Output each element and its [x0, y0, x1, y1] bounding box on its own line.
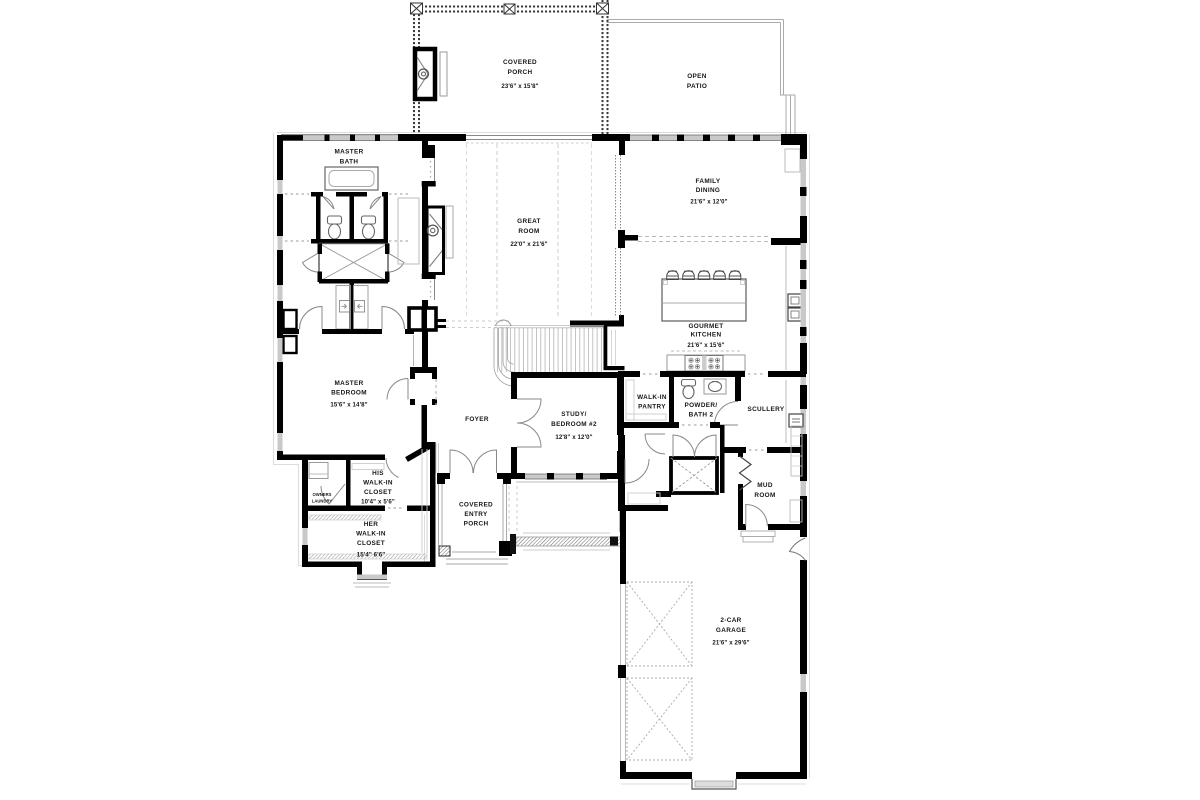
- svg-text:GARAGE: GARAGE: [716, 627, 747, 634]
- svg-text:MASTER: MASTER: [334, 380, 363, 387]
- svg-text:ROOM: ROOM: [518, 228, 539, 235]
- svg-text:10'4" x 5'6": 10'4" x 5'6": [361, 499, 395, 506]
- svg-text:BATH 2: BATH 2: [689, 412, 714, 419]
- svg-text:PANTRY: PANTRY: [638, 404, 666, 411]
- svg-text:MUD: MUD: [757, 482, 773, 489]
- svg-text:HIS: HIS: [372, 470, 384, 477]
- svg-text:CLOSET: CLOSET: [364, 489, 392, 496]
- svg-text:SCULLERY: SCULLERY: [747, 406, 784, 413]
- svg-text:POWDER/: POWDER/: [685, 402, 718, 409]
- svg-text:KITCHEN: KITCHEN: [691, 332, 722, 339]
- svg-text:21'6" x 15'6": 21'6" x 15'6": [687, 342, 724, 349]
- svg-text:21'6" x 29'6": 21'6" x 29'6": [712, 640, 749, 647]
- svg-text:COVERED: COVERED: [503, 59, 537, 66]
- svg-text:15'4" 6'6": 15'4" 6'6": [357, 552, 386, 559]
- svg-text:WALK-IN: WALK-IN: [363, 480, 393, 487]
- svg-text:GREAT: GREAT: [517, 218, 541, 225]
- svg-text:15'6" x 14'8": 15'6" x 14'8": [330, 402, 367, 409]
- svg-text:ROOM: ROOM: [754, 492, 775, 499]
- svg-text:FAMILY: FAMILY: [696, 178, 721, 185]
- svg-text:OPEN: OPEN: [687, 73, 707, 80]
- svg-text:BEDROOM: BEDROOM: [331, 390, 367, 397]
- svg-text:ENTRY: ENTRY: [464, 511, 488, 518]
- svg-text:21'6" x 12'0": 21'6" x 12'0": [690, 199, 727, 206]
- svg-text:PORCH: PORCH: [464, 521, 489, 528]
- svg-text:22'0" x 21'6": 22'0" x 21'6": [510, 241, 547, 248]
- svg-text:DINING: DINING: [696, 187, 720, 194]
- svg-text:2-CAR: 2-CAR: [720, 617, 741, 624]
- svg-text:MASTER: MASTER: [334, 149, 363, 156]
- svg-text:CLOSET: CLOSET: [357, 540, 385, 547]
- svg-text:BEDROOM #2: BEDROOM #2: [551, 421, 597, 428]
- svg-text:OWNERS: OWNERS: [313, 492, 332, 497]
- svg-text:COVERED: COVERED: [459, 502, 493, 509]
- svg-text:HER: HER: [364, 521, 379, 528]
- svg-text:FOYER: FOYER: [465, 416, 489, 423]
- svg-text:WALK-IN: WALK-IN: [637, 394, 667, 401]
- svg-text:PORCH: PORCH: [508, 69, 533, 76]
- svg-text:LAUNDRY: LAUNDRY: [312, 499, 333, 504]
- svg-text:GOURMET: GOURMET: [688, 323, 723, 330]
- svg-text:STUDY/: STUDY/: [561, 411, 587, 418]
- svg-text:PATIO: PATIO: [687, 83, 707, 90]
- svg-text:12'8" x 12'0": 12'8" x 12'0": [555, 434, 592, 441]
- svg-text:BATH: BATH: [340, 159, 359, 166]
- svg-text:WALK-IN: WALK-IN: [356, 531, 386, 538]
- svg-text:23'6" x 15'8": 23'6" x 15'8": [501, 83, 538, 90]
